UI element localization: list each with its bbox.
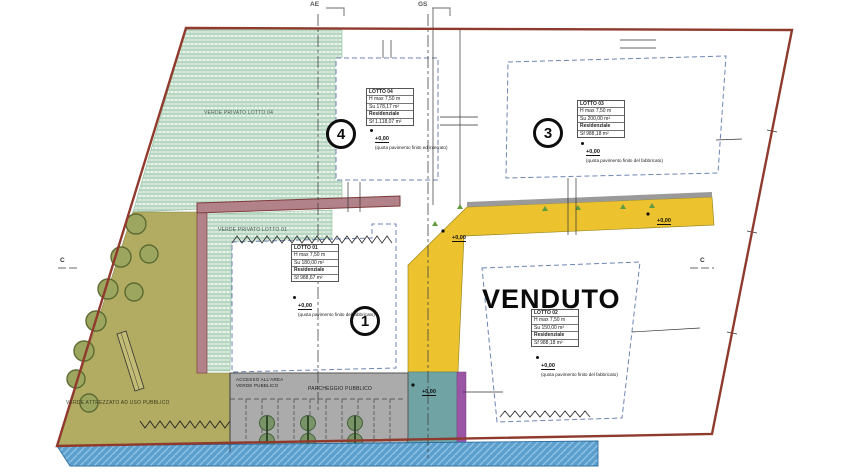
quota-dot-icon: [536, 356, 539, 359]
lot3-number-badge: 3: [533, 118, 563, 148]
lot4-row: Su 178,17 m²: [367, 103, 413, 110]
lot1-row: Su 180,00 m²: [292, 259, 338, 266]
lot3-row: Su 200,00 m²: [578, 115, 624, 122]
lot4-row: Residenziale: [367, 110, 413, 117]
lot2-row: Su 150,00 m²: [532, 324, 578, 331]
label-verde-attrezzato: VERDE ATTREZZATO AD USO PUBBLICO: [66, 400, 170, 406]
section-label-top-right: GS: [418, 1, 427, 8]
lot3-data-table: LOTTO 03 H max 7,50 m Su 200,00 m² Resid…: [577, 100, 625, 138]
lot2-row: Residenziale: [532, 331, 578, 338]
lot3-row: H max 7,50 m: [578, 107, 624, 114]
lot2-quota-marker: +0,00 (quota pavimento finito del fabbri…: [536, 354, 618, 377]
label-accesso-line1: ACCESSO ALL'AREA: [236, 377, 283, 382]
lot3-row: Sf 988,18 m²: [578, 130, 624, 137]
quota-dot-icon: [581, 142, 584, 145]
lot4-number-badge: 4: [326, 119, 356, 149]
road-quota-corner: +0,00: [447, 226, 466, 244]
lot1-row: Residenziale: [292, 266, 338, 273]
lot4-row: Sf 1.118,07 m²: [367, 118, 413, 125]
lot3-row: Residenziale: [578, 122, 624, 129]
lot1-data-table: LOTTO 01 H max 7,50 m Su 180,00 m² Resid…: [291, 244, 339, 282]
section-label-top-left: AE: [310, 1, 319, 8]
lot1-row: Sf 988,67 m²: [292, 274, 338, 281]
site-plan: AE GS C C VERDE PRIVATO LOTTO 04 VERDE P…: [0, 0, 860, 473]
section-label-right: C: [700, 257, 705, 264]
quota-dot-icon: [293, 296, 296, 299]
label-accesso-line2: VERDE PUBBLICO: [236, 383, 278, 388]
label-parcheggio: PARCHEGGIO PUBBLICO: [308, 386, 372, 392]
lot4-data-table: LOTTO 04 H max 7,50 m Su 178,17 m² Resid…: [366, 88, 414, 126]
label-verde-privato-lotto01: VERDE PRIVATO LOTTO 01: [218, 227, 287, 233]
lot2-row: H max 7,50 m: [532, 316, 578, 323]
lot4-row: H max 7,50 m: [367, 95, 413, 102]
lot2-data-table: LOTTO 02 H max 7,50 m Su 150,00 m² Resid…: [531, 309, 579, 347]
road-quota-top: +0,00: [652, 209, 671, 227]
lot1-quota-marker: +0,00 (quota pavimento finito del fabbri…: [293, 294, 375, 317]
lot1-row: H max 7,50 m: [292, 251, 338, 258]
lot4-quota-marker: +0,00 (quota pavimento finito ed interra…: [370, 127, 448, 150]
quota-dot-icon: [370, 129, 373, 132]
lot3-quota-marker: +0,00 (quota pavimento finito del fabbri…: [581, 140, 663, 163]
road-quota-ramp: +0,00: [417, 380, 436, 398]
label-verde-privato-lotto04: VERDE PRIVATO LOTTO 04: [204, 110, 273, 116]
section-label-left: C: [60, 257, 65, 264]
lot2-row: Sf 988,18 m²: [532, 339, 578, 346]
